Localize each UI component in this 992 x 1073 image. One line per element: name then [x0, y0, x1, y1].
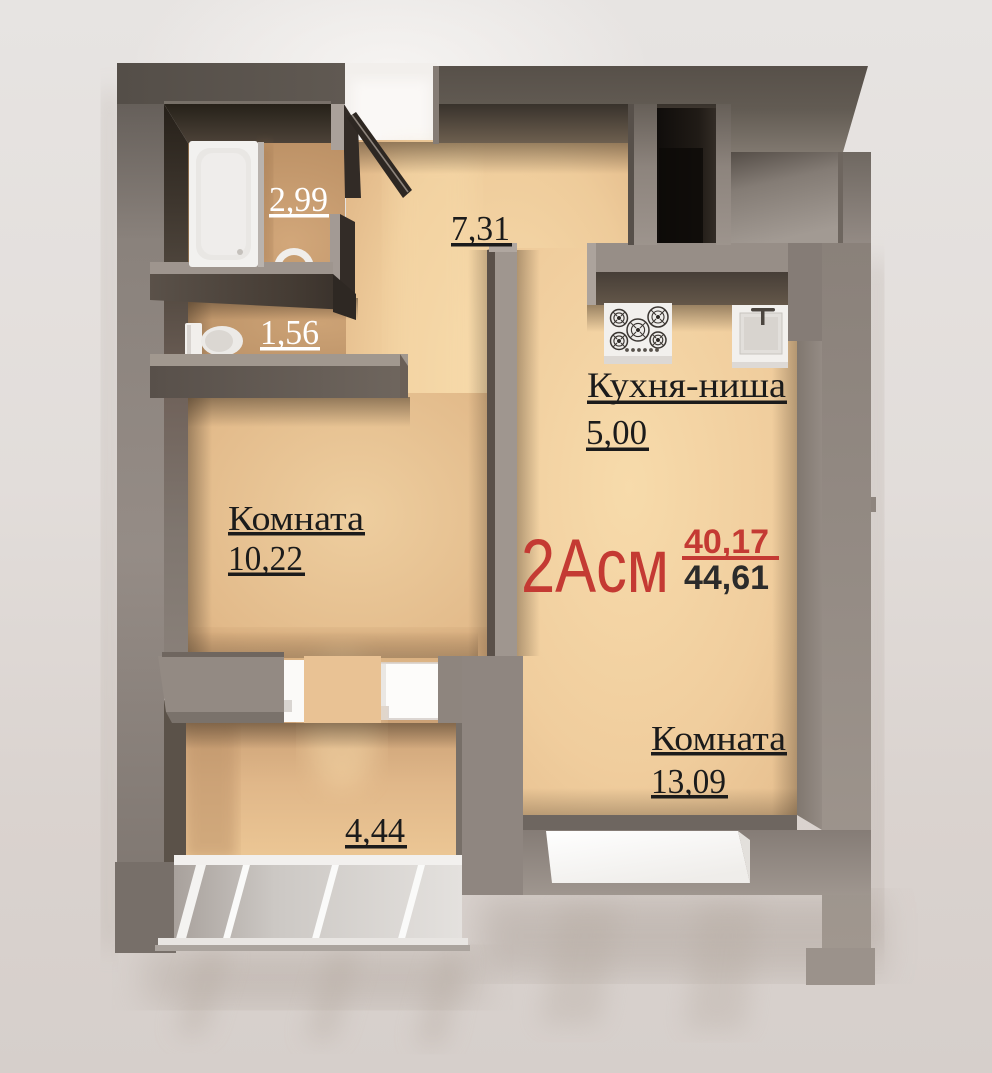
svg-text:2,99: 2,99	[269, 180, 328, 219]
svg-text:44,61: 44,61	[684, 559, 769, 597]
svg-text:4,44: 4,44	[345, 811, 405, 850]
svg-text:1,56: 1,56	[260, 313, 319, 352]
svg-text:Кухня-ниша: Кухня-ниша	[587, 365, 786, 405]
svg-text:5,00: 5,00	[586, 413, 647, 452]
svg-text:7,31: 7,31	[451, 209, 510, 248]
svg-text:40,17: 40,17	[684, 523, 769, 561]
svg-text:10,22: 10,22	[228, 539, 303, 578]
svg-text:2Асм: 2Асм	[521, 523, 669, 609]
